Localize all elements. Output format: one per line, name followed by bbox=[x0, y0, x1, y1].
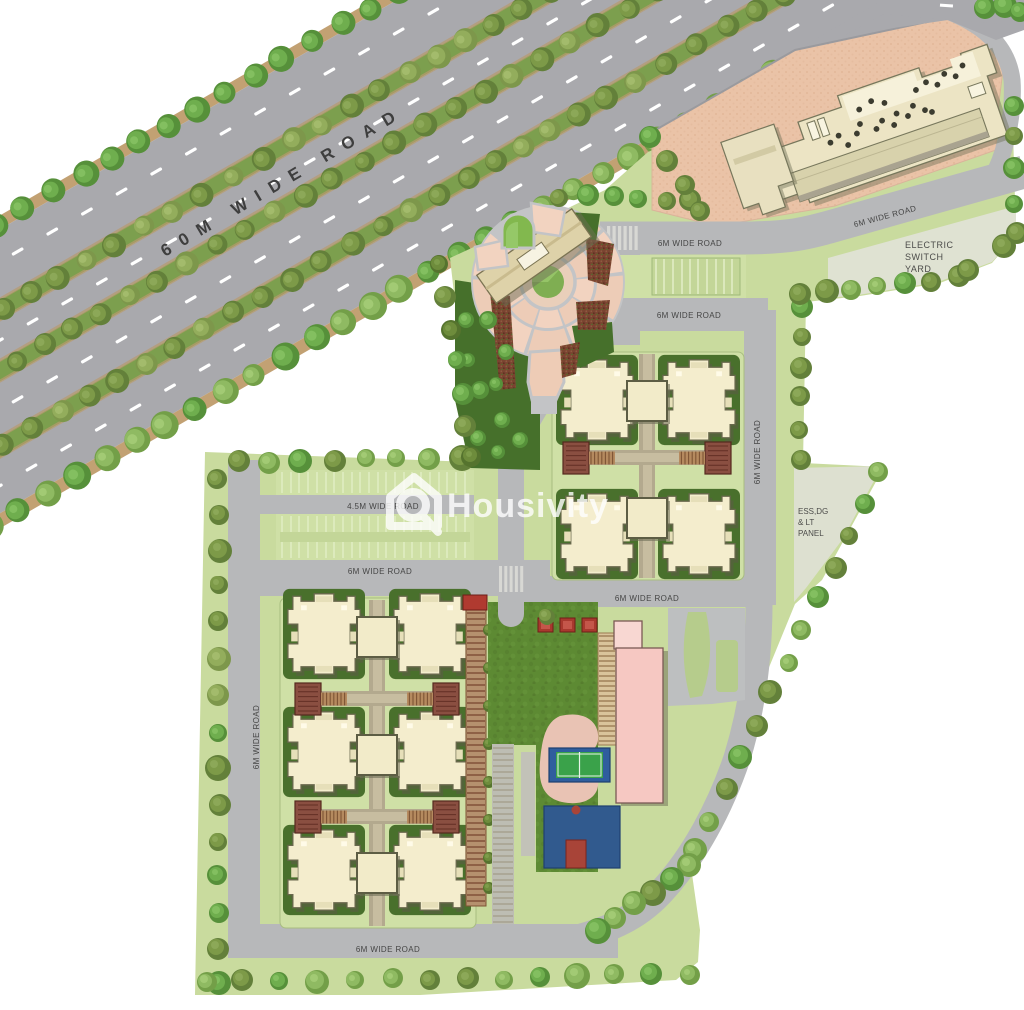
svg-text:SWITCH: SWITCH bbox=[905, 252, 944, 262]
svg-text:ELECTRIC: ELECTRIC bbox=[905, 240, 954, 250]
svg-text:6M WIDE ROAD: 6M WIDE ROAD bbox=[252, 705, 261, 769]
svg-text:YARD: YARD bbox=[905, 264, 931, 274]
svg-text:ESS,DG: ESS,DG bbox=[798, 507, 828, 516]
svg-text:& LT: & LT bbox=[798, 518, 814, 527]
svg-text:Housivity: Housivity bbox=[447, 487, 609, 525]
svg-text:6M WIDE ROAD: 6M WIDE ROAD bbox=[356, 945, 420, 954]
svg-text:6M WIDE ROAD: 6M WIDE ROAD bbox=[658, 239, 722, 248]
svg-text:6M WIDE ROAD: 6M WIDE ROAD bbox=[657, 311, 721, 320]
svg-text:6M WIDE ROAD: 6M WIDE ROAD bbox=[348, 567, 412, 576]
svg-text:4.5M WIDE ROAD: 4.5M WIDE ROAD bbox=[347, 502, 419, 511]
svg-text:6M WIDE ROAD: 6M WIDE ROAD bbox=[753, 420, 762, 484]
svg-text:PANEL: PANEL bbox=[798, 529, 824, 538]
svg-text:6M WIDE ROAD: 6M WIDE ROAD bbox=[615, 594, 679, 603]
